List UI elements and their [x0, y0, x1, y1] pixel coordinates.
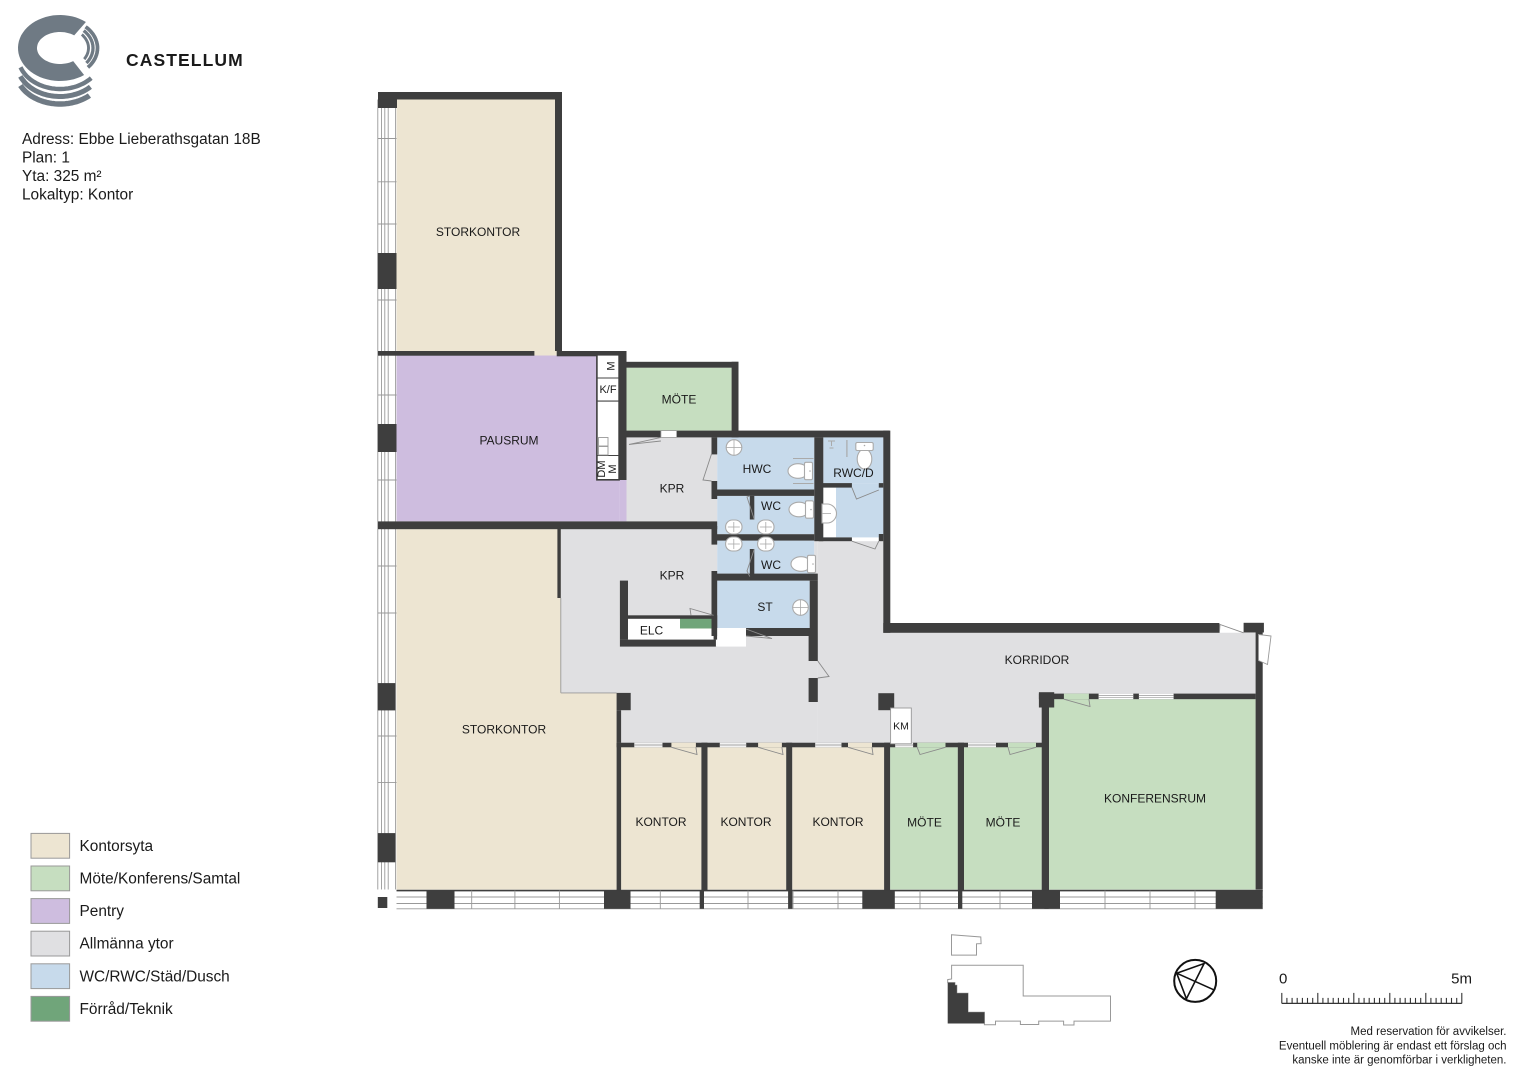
svg-text:STORKONTOR: STORKONTOR [436, 225, 521, 239]
svg-text:0: 0 [1279, 971, 1287, 988]
svg-text:ST: ST [757, 600, 773, 614]
svg-text:MÖTE: MÖTE [662, 393, 697, 407]
svg-text:Adress: Ebbe Lieberathsgatan 1: Adress: Ebbe Lieberathsgatan 18B [22, 131, 261, 148]
svg-text:Kontorsyta: Kontorsyta [80, 838, 154, 855]
svg-text:kanske inte är genomförbar i v: kanske inte är genomförbar i verklighete… [1292, 1055, 1506, 1067]
svg-text:HWC: HWC [743, 462, 772, 476]
svg-text:KONFERENSRUM: KONFERENSRUM [1104, 792, 1206, 806]
svg-text:KM: KM [893, 721, 909, 733]
svg-text:Möte/Konferens/Samtal: Möte/Konferens/Samtal [80, 871, 241, 888]
svg-text:Eventuell möblering är endast: Eventuell möblering är endast ett försla… [1279, 1040, 1507, 1052]
svg-text:ELC: ELC [640, 624, 664, 638]
svg-text:Yta: 325 m²: Yta: 325 m² [22, 168, 102, 185]
svg-text:Förråd/Teknik: Förråd/Teknik [80, 1001, 174, 1018]
svg-text:Plan: 1: Plan: 1 [22, 150, 70, 167]
svg-text:Med reservation för avvikelser: Med reservation för avvikelser. [1351, 1026, 1507, 1038]
svg-text:5m: 5m [1451, 971, 1472, 988]
svg-text:WC/RWC/Städ/Dusch: WC/RWC/Städ/Dusch [80, 968, 230, 985]
svg-text:KPR: KPR [660, 482, 685, 496]
svg-text:MÖTE: MÖTE [907, 816, 942, 830]
svg-text:M: M [607, 464, 619, 473]
svg-text:WC: WC [761, 558, 781, 572]
svg-text:Pentry: Pentry [80, 903, 125, 920]
svg-text:STORKONTOR: STORKONTOR [462, 723, 547, 737]
svg-text:KONTOR: KONTOR [720, 815, 771, 829]
svg-text:PAUSRUM: PAUSRUM [479, 434, 538, 448]
svg-text:WC: WC [761, 499, 781, 513]
svg-text:KONTOR: KONTOR [635, 815, 686, 829]
svg-text:M: M [606, 361, 618, 370]
svg-text:KORRIDOR: KORRIDOR [1005, 653, 1070, 667]
svg-text:MÖTE: MÖTE [986, 816, 1021, 830]
svg-text:K/F: K/F [599, 384, 616, 396]
svg-text:CASTELLUM: CASTELLUM [126, 50, 244, 70]
svg-text:KONTOR: KONTOR [812, 815, 863, 829]
svg-text:Lokaltyp: Kontor: Lokaltyp: Kontor [22, 187, 133, 204]
svg-text:KPR: KPR [660, 569, 685, 583]
svg-text:RWC/D: RWC/D [833, 466, 874, 480]
svg-text:Allmänna ytor: Allmänna ytor [80, 936, 174, 953]
